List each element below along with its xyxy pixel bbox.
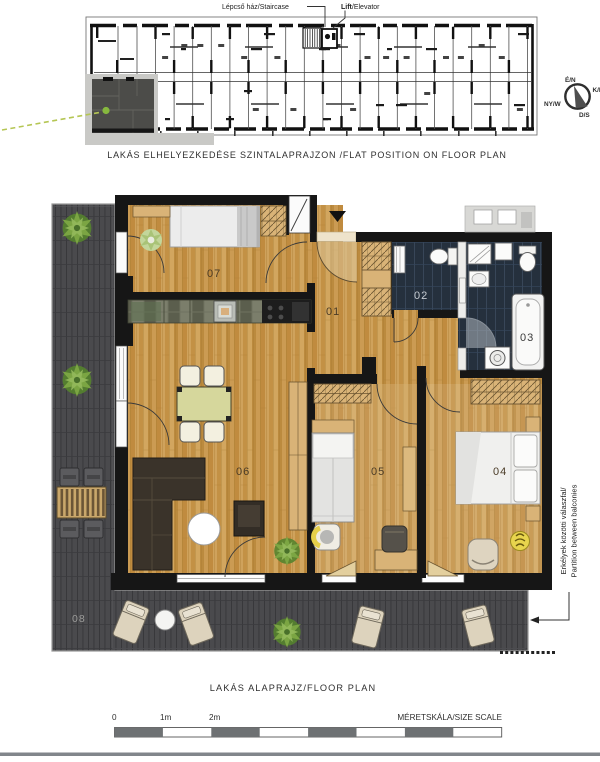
svg-text:02: 02 [414,290,428,302]
svg-text:05: 05 [371,466,385,478]
svg-text:LAKÁS ALAPRAJZ/FLOOR PLAN: LAKÁS ALAPRAJZ/FLOOR PLAN [210,683,376,693]
svg-text:Erkélyek közötti válaszfal/: Erkélyek közötti válaszfal/ [559,487,568,575]
svg-text:NY/W: NY/W [544,101,562,108]
svg-text:D/S: D/S [579,112,590,119]
svg-text:É/N: É/N [565,75,576,84]
svg-text:03: 03 [520,332,534,344]
svg-text:MÉRETSKÁLA/SIZE SCALE: MÉRETSKÁLA/SIZE SCALE [397,712,502,722]
svg-text:08: 08 [72,613,86,625]
svg-text:Lépcső ház/Staircase: Lépcső ház/Staircase [222,4,289,11]
svg-text:1m: 1m [160,713,172,722]
svg-text:01: 01 [326,306,340,318]
svg-text:06: 06 [236,466,250,478]
svg-text:LAKÁS ELHELYEZKEDÉSE SZINTALAP: LAKÁS ELHELYEZKEDÉSE SZINTALAPRAJZON /FL… [107,150,506,160]
svg-text:Partition between balconies: Partition between balconies [570,484,579,577]
svg-text:K/E: K/E [593,87,600,94]
svg-text:Lift/Elevator: Lift/Elevator [341,4,380,11]
svg-text:04: 04 [493,466,507,478]
svg-text:0: 0 [112,713,117,722]
svg-text:2m: 2m [209,713,221,722]
svg-text:07: 07 [207,268,221,280]
